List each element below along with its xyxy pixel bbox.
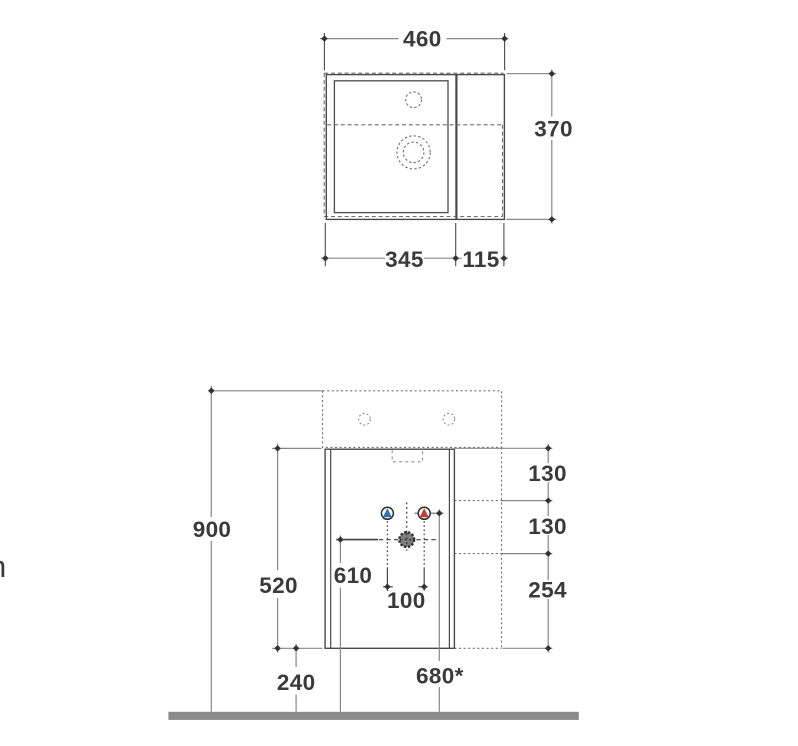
svg-text:610: 610 [334,563,373,588]
svg-text:370: 370 [534,116,573,141]
svg-text:240: 240 [277,670,316,695]
svg-text:460: 460 [403,27,442,52]
svg-text:130: 130 [528,514,567,539]
svg-text:115: 115 [462,247,499,272]
svg-text:100: 100 [387,588,426,613]
svg-text:130: 130 [528,461,567,486]
svg-text:900: 900 [193,517,232,542]
svg-text:680*: 680* [416,664,464,689]
svg-text:n: n [0,550,6,584]
svg-text:520: 520 [259,573,298,598]
svg-text:345: 345 [385,247,424,272]
svg-text:254: 254 [528,578,567,603]
